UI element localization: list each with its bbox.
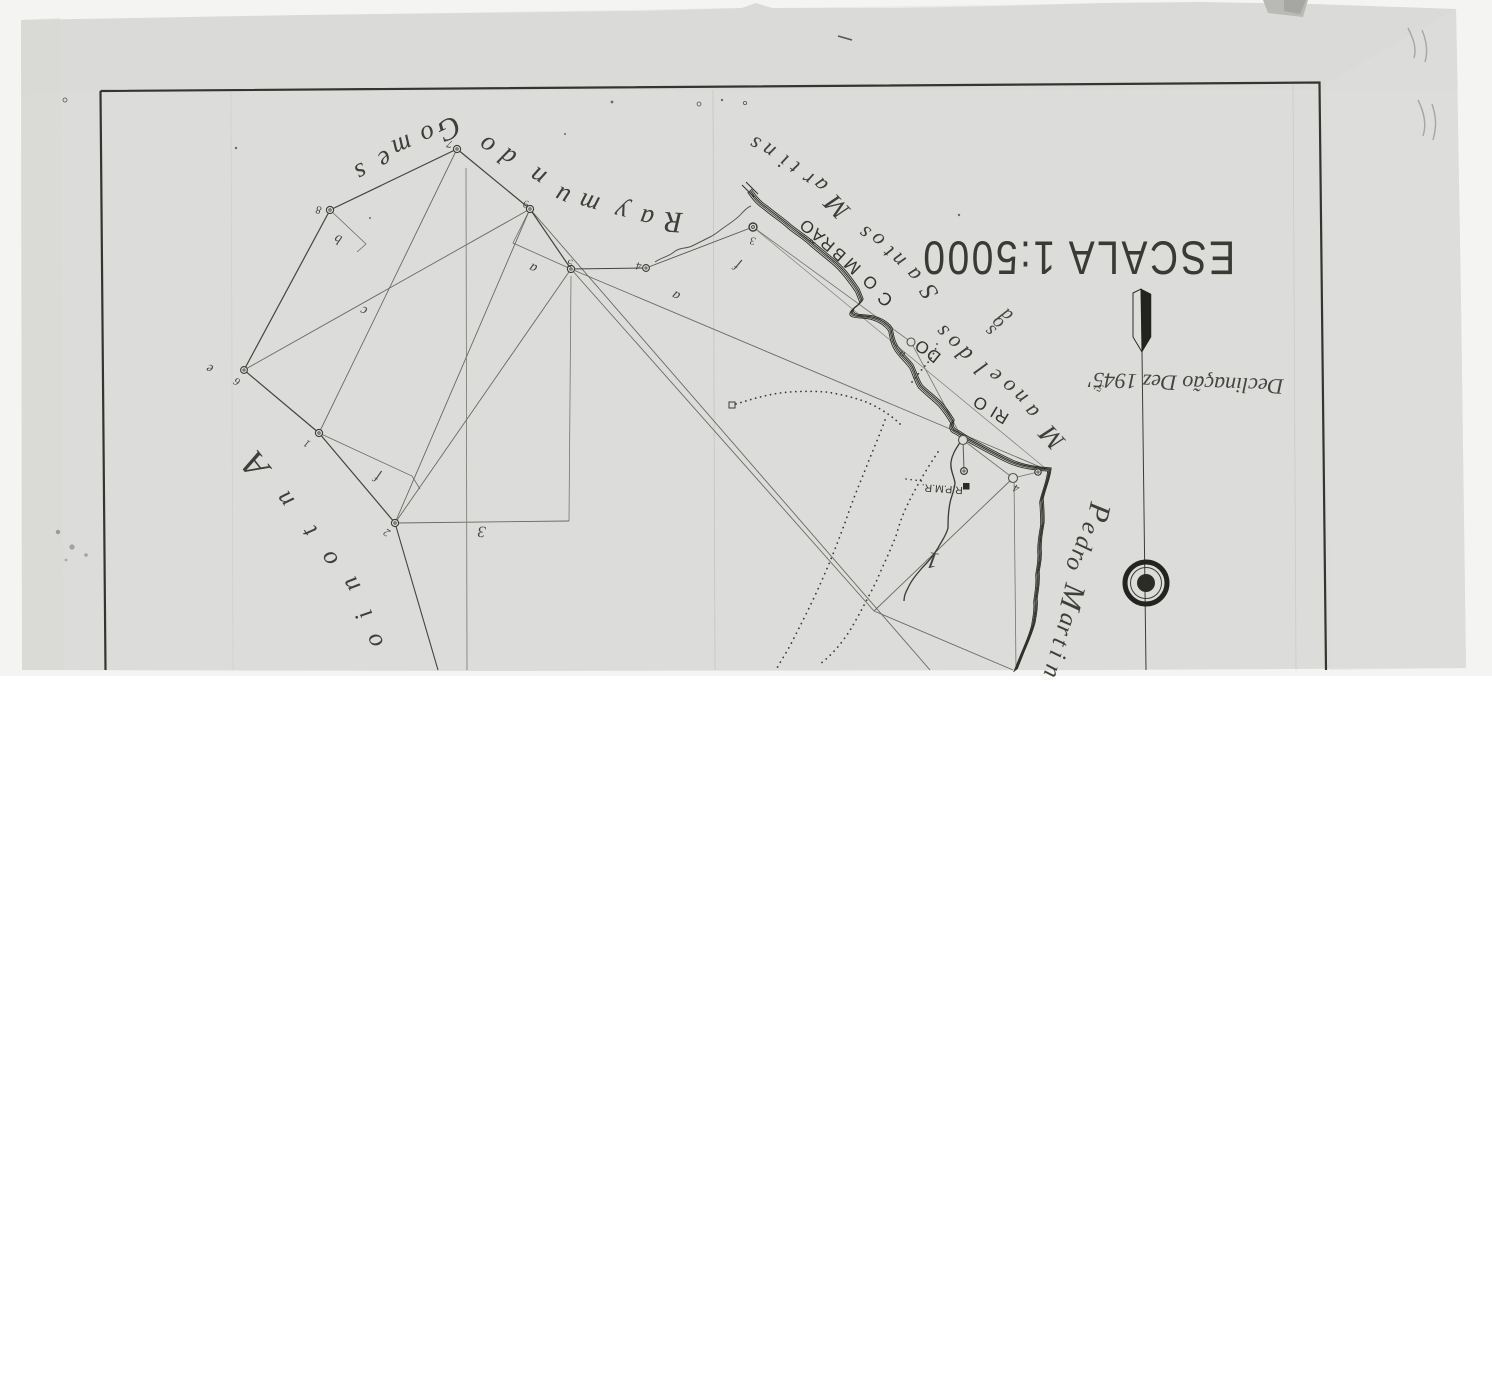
svg-text:ESCALA 1:5000: ESCALA 1:5000 — [921, 231, 1235, 283]
svg-text:3: 3 — [477, 522, 487, 540]
svg-text:R: R — [663, 205, 684, 239]
